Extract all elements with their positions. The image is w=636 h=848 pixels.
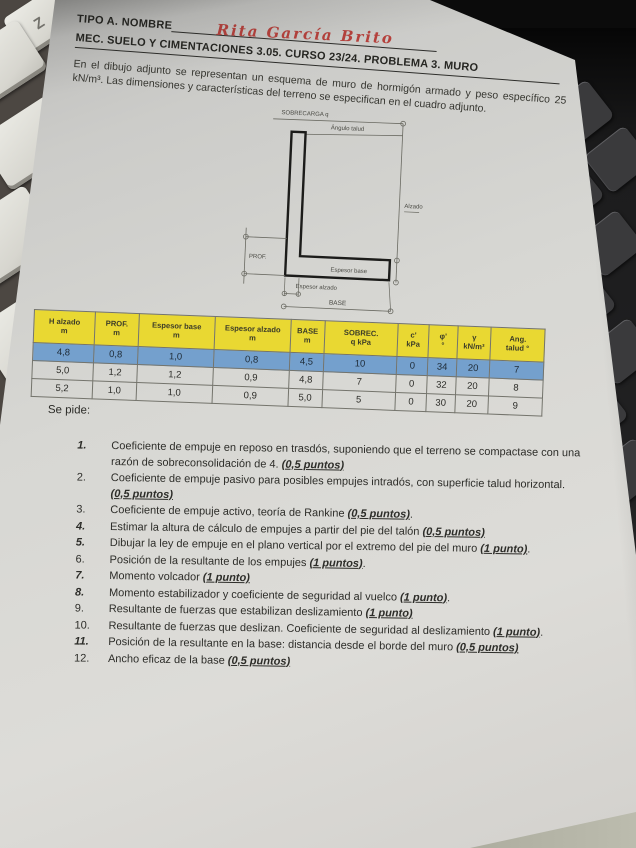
key-z-label: Z: [31, 13, 48, 32]
table-cell: 5,0: [288, 388, 322, 407]
table-cell: 1,0: [136, 382, 213, 403]
task-points: (1 punto): [365, 607, 412, 620]
task-points: (0,5 puntos): [456, 641, 519, 654]
handwritten-name: Rita García Brito: [216, 21, 394, 48]
table-cell: 32: [427, 376, 456, 395]
task-number: 4.: [76, 519, 106, 535]
stem-thickness-label: Espesor alzado: [295, 284, 337, 292]
exam-paper: TIPO A. NOMBRERita García Brito MEC. SUE…: [0, 0, 636, 848]
column-header: Espesor basem: [138, 314, 215, 350]
table-cell: 1,0: [92, 381, 136, 401]
photo-scene: Z TIPO A. NOMBRERita García Brito MEC. S…: [0, 0, 636, 848]
task-points: (1 punto): [493, 626, 540, 639]
task-points: (1 punto): [203, 571, 250, 584]
table-cell: 1,2: [93, 363, 137, 383]
task-points: (0,5 puntos): [347, 508, 410, 521]
task-text: Momento volcador: [109, 570, 203, 583]
task-number: 11.: [74, 634, 104, 650]
table-cell: 4,5: [289, 352, 323, 371]
column-header: Ang.talud °: [490, 327, 545, 362]
task-text: Coeficiente de empuje activo, teoría de …: [110, 504, 347, 520]
task-points: (0,5 puntos): [111, 487, 174, 500]
table-cell: 5: [321, 390, 395, 411]
task-number: 3.: [76, 502, 106, 518]
task-number: 5.: [76, 535, 106, 551]
task-text: Ancho eficaz de la base: [108, 652, 228, 666]
task-points: (0,5 puntos): [282, 458, 345, 471]
task-number: 7.: [75, 568, 105, 584]
table-cell: 5,2: [31, 378, 93, 398]
base-thickness-label: Espesor base: [330, 268, 368, 276]
table-cell: 0,8: [94, 345, 138, 365]
task-number: 6.: [75, 552, 105, 568]
wall-diagram: SOBRECARGA q Ángulo talud Alzado PROF. E…: [202, 100, 481, 324]
table-cell: 4,8: [289, 370, 323, 389]
task-number: 10.: [74, 618, 104, 634]
task-number: 12.: [74, 651, 104, 667]
table-cell: 34: [427, 358, 456, 377]
column-header: c'kPa: [397, 323, 429, 357]
base-label: BASE: [329, 300, 347, 308]
column-header: BASEm: [290, 319, 325, 353]
tasks-section: Se pide: 1.Coeficiente de empuje en repo…: [44, 404, 582, 675]
task-points: (1 punto): [480, 543, 527, 556]
task-number: 1.: [77, 438, 107, 454]
task-points: (0,5 puntos): [228, 654, 291, 667]
wall-outline: [285, 132, 395, 281]
slope-angle-label: Ángulo talud: [331, 124, 365, 133]
column-header: γkN/m³: [457, 326, 492, 360]
task-number: 2.: [77, 470, 107, 486]
task-number: 9.: [75, 601, 105, 617]
table-cell: 4,8: [33, 342, 95, 362]
table-cell: 7: [490, 360, 544, 380]
table-cell: 20: [455, 377, 489, 396]
task-number: 8.: [75, 585, 105, 601]
column-header: H alzadom: [33, 310, 95, 345]
task-points: (1 puntos): [309, 557, 362, 570]
table-cell: 0,9: [212, 385, 289, 406]
surcharge-label: SOBRECARGA q: [281, 110, 328, 118]
table-cell: 5,0: [32, 360, 94, 380]
parameters-table: H alzadomPROF.mEspesor basemEspesor alza…: [31, 309, 546, 417]
task-text: Estimar la altura de cálculo de empujes …: [110, 520, 423, 537]
table-cell: 20: [456, 359, 490, 378]
task-text: Resultante de fuerzas que estabilizan de…: [109, 603, 366, 619]
depth-label: PROF.: [249, 254, 267, 261]
task-text: Posición de la resultante de los empujes: [109, 553, 309, 568]
task-text: Momento estabilizador y coeficiente de s…: [109, 586, 400, 603]
column-header: Espesor alzadom: [214, 316, 291, 352]
column-header: φ'°: [428, 325, 458, 359]
task-list: 1.Coeficiente de empuje en reposo en tra…: [44, 438, 582, 674]
table-cell: 8: [489, 378, 543, 398]
exam-type-label: TIPO A. NOMBRE: [77, 13, 173, 32]
table-cell: 0: [396, 374, 428, 393]
column-header: PROF.m: [94, 312, 139, 347]
height-label: Alzado: [404, 204, 423, 211]
task-points: (0,5 puntos): [422, 525, 485, 538]
task-points: (1 punto): [400, 591, 447, 604]
task-text: Coeficiente de empuje en reposo en trasd…: [111, 440, 580, 470]
table-cell: 0: [396, 356, 428, 375]
column-header: SOBREC.q kPa: [324, 321, 399, 357]
